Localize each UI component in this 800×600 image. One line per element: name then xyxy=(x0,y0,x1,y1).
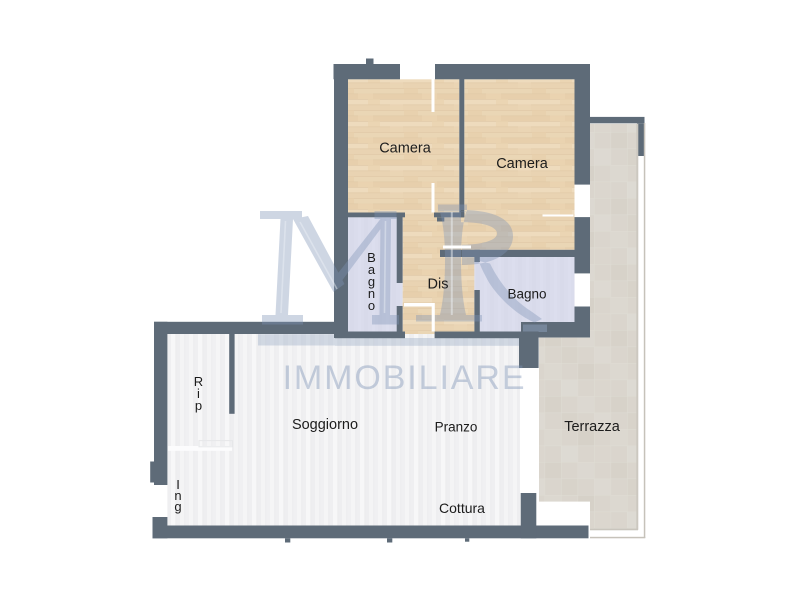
svg-text:Soggiorno: Soggiorno xyxy=(292,417,358,433)
svg-text:Pranzo: Pranzo xyxy=(435,420,478,435)
svg-text:Terrazza: Terrazza xyxy=(564,419,621,435)
svg-text:Bagno: Bagno xyxy=(507,287,546,302)
svg-text:Camera: Camera xyxy=(496,156,549,172)
svg-text:IMMOBILIARE: IMMOBILIARE xyxy=(283,359,527,397)
svg-text:Camera: Camera xyxy=(379,141,432,157)
svg-text:Dis: Dis xyxy=(428,277,449,293)
svg-text:Cottura: Cottura xyxy=(439,500,485,516)
svg-text:o: o xyxy=(368,298,375,313)
svg-text:p: p xyxy=(195,398,202,413)
svg-text:g: g xyxy=(174,499,181,514)
